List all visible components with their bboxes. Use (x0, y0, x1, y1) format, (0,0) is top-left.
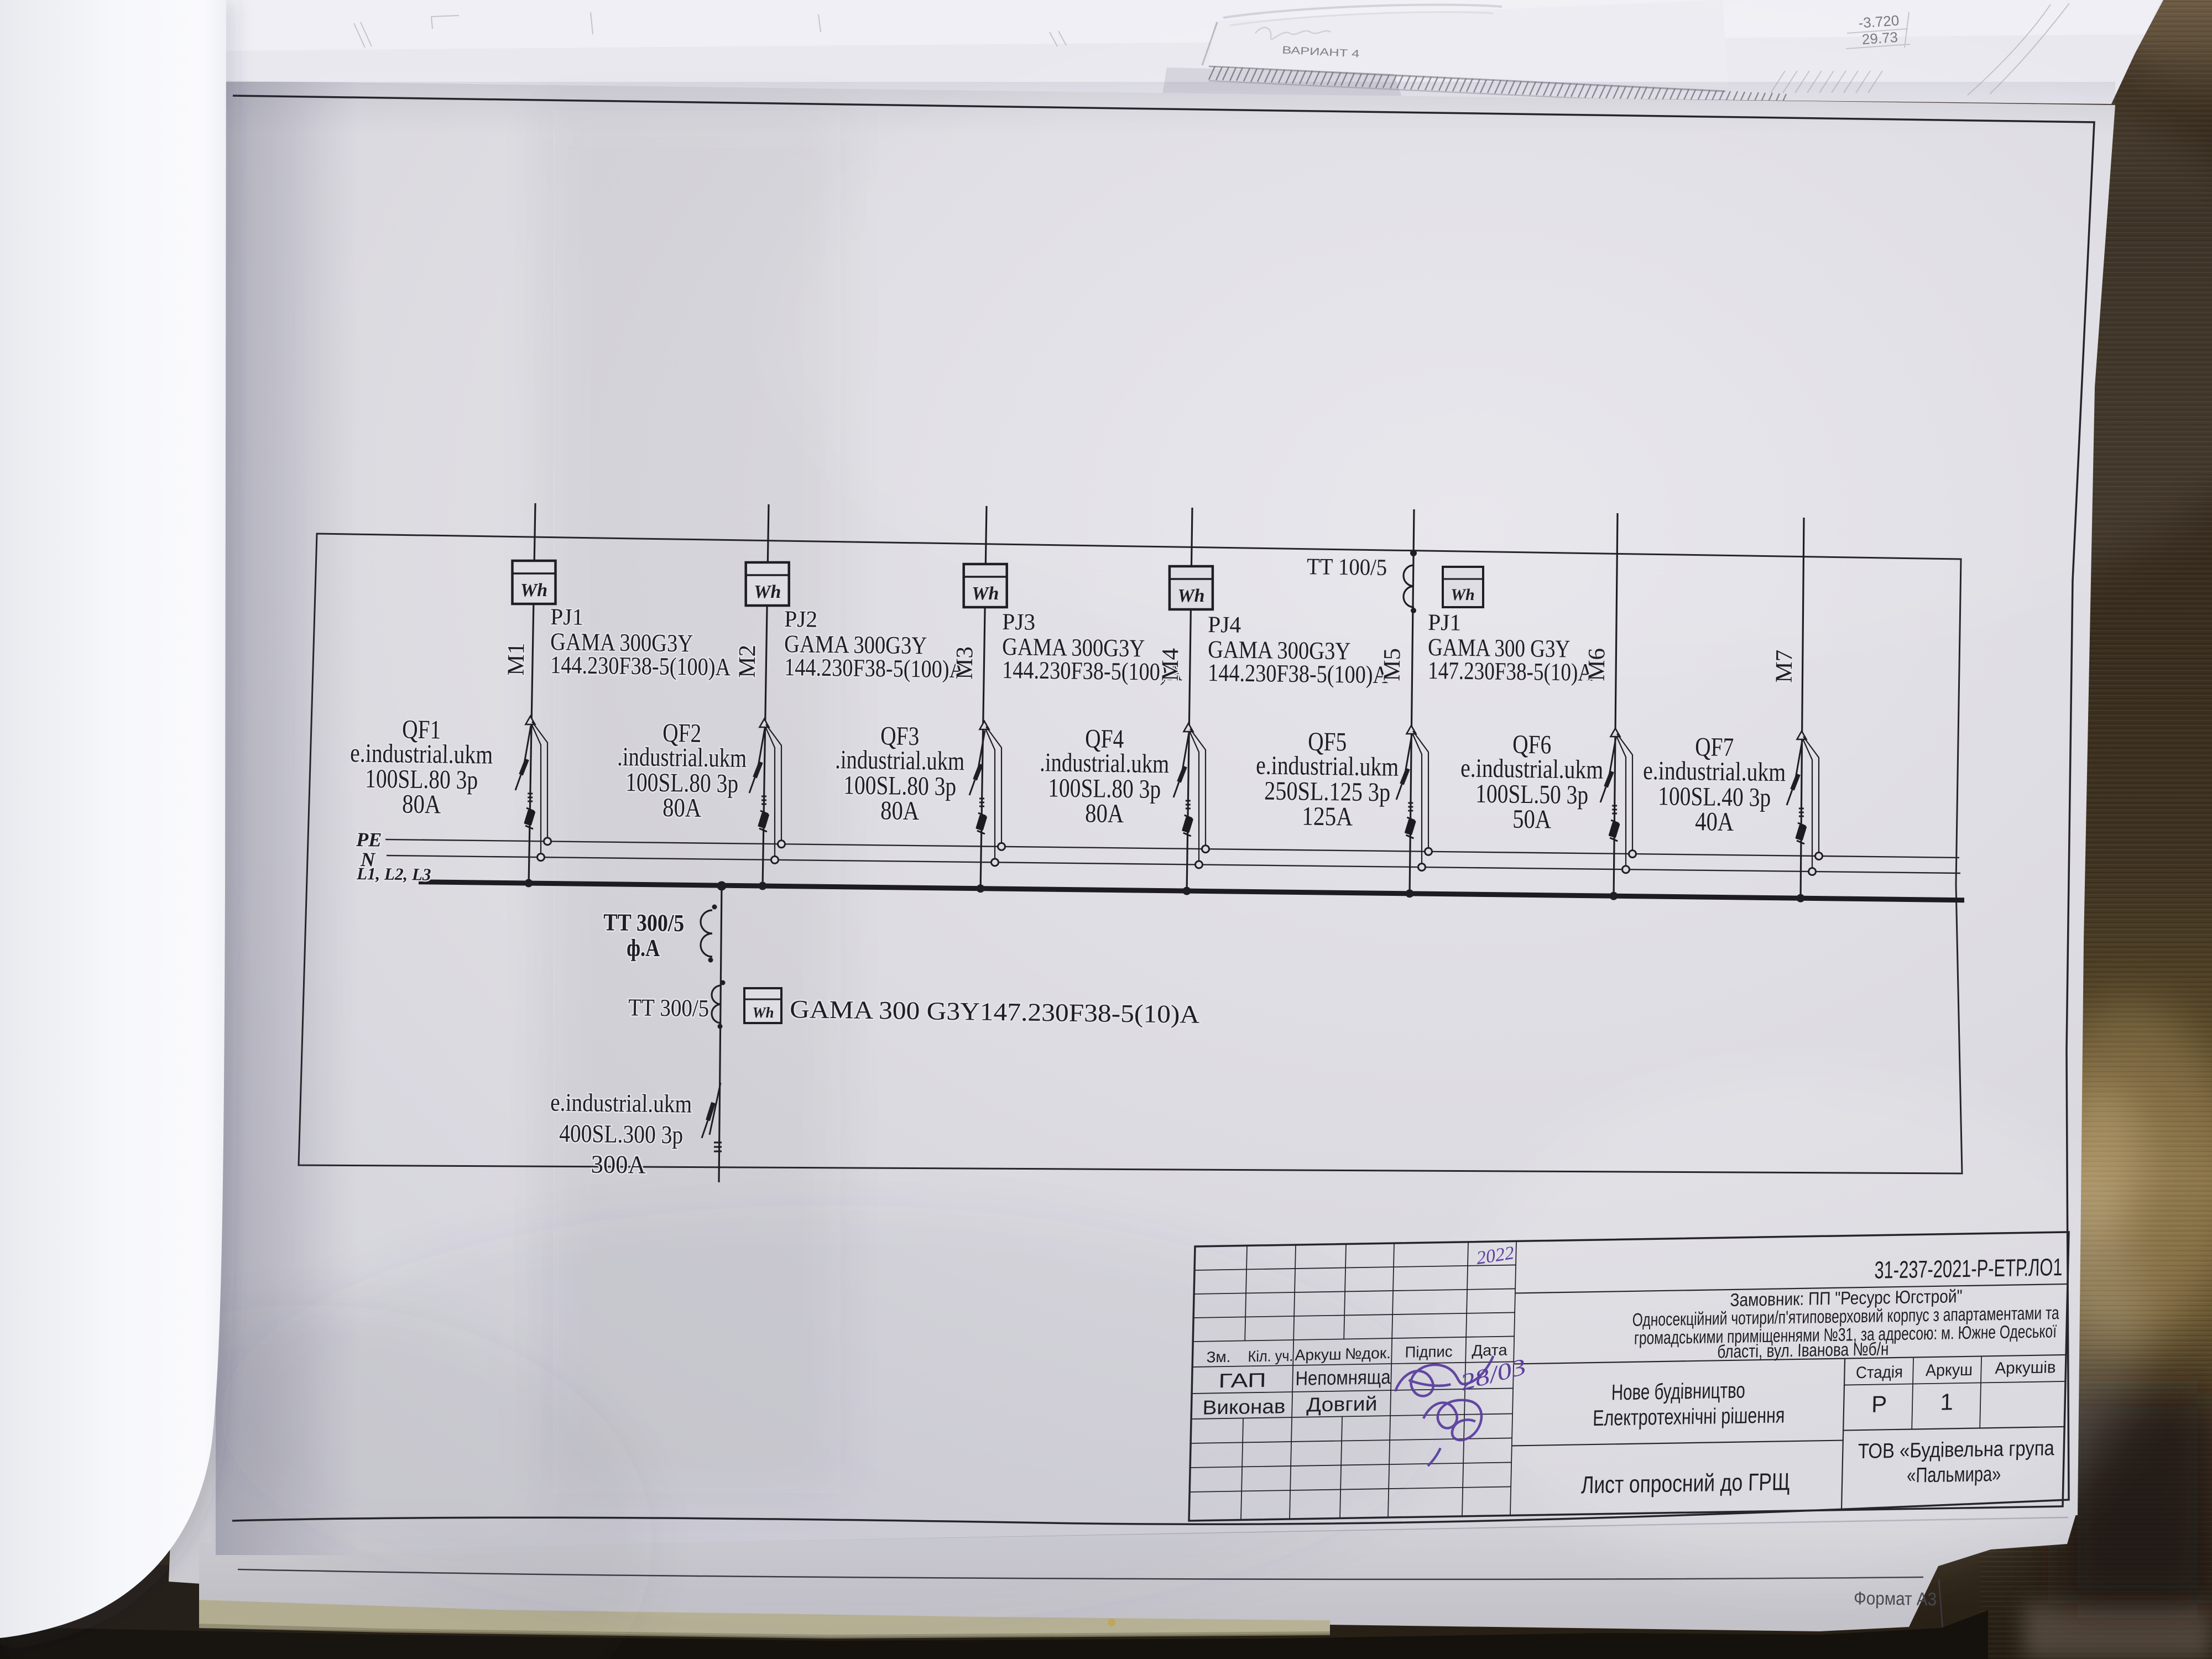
svg-text:Стадія: Стадія (1856, 1363, 1903, 1382)
svg-text:Wh: Wh (1177, 586, 1204, 606)
svg-text:Лист опросний до ГРЩ: Лист опросний до ГРЩ (1581, 1468, 1791, 1499)
svg-text:GAMA 300 G3Y147.230F38-5(10)A: GAMA 300 G3Y147.230F38-5(10)A (790, 995, 1200, 1029)
svg-text:Електротехнічні рішення: Електротехнічні рішення (1593, 1403, 1785, 1431)
svg-text:144.230F38-5(100)A: 144.230F38-5(100)A (550, 651, 731, 681)
svg-text:L1, L2, L3: L1, L2, L3 (356, 864, 431, 884)
svg-text:PJ4: PJ4 (1208, 612, 1241, 638)
svg-text:ТТ 300/5: ТТ 300/5 (628, 994, 709, 1022)
svg-text:Р: Р (1871, 1391, 1887, 1417)
svg-text:144.230F38-5(100)A: 144.230F38-5(100)A (1002, 656, 1183, 686)
svg-text:80A: 80A (402, 790, 441, 820)
svg-text:М2: М2 (734, 645, 761, 678)
svg-text:«Пальмира»: «Пальмира» (1907, 1463, 2001, 1488)
svg-text:ф.А: ф.А (627, 934, 660, 962)
svg-text:1: 1 (1940, 1389, 1953, 1415)
svg-text:№док.: №док. (1345, 1344, 1391, 1362)
svg-text:144.230F38-5(100)A: 144.230F38-5(100)A (1208, 659, 1389, 688)
svg-text:PE: PE (356, 828, 382, 851)
svg-text:Непомняща: Непомняща (1295, 1365, 1391, 1390)
svg-text:Кіл. уч.: Кіл. уч. (1248, 1347, 1293, 1365)
svg-text:300A: 300A (591, 1150, 646, 1178)
svg-text:Зм.: Зм. (1206, 1348, 1231, 1366)
svg-text:Аркуш: Аркуш (1926, 1361, 1973, 1380)
svg-text:80A: 80A (880, 796, 920, 826)
svg-text:Аркушів: Аркушів (1995, 1358, 2056, 1378)
svg-text:Wh: Wh (972, 583, 999, 604)
svg-text:Нове будівництво: Нове будівництво (1611, 1379, 1745, 1405)
svg-text:Wh: Wh (754, 582, 781, 602)
svg-text:Довгий: Довгий (1306, 1392, 1378, 1416)
svg-text:PJ2: PJ2 (784, 607, 818, 633)
svg-text:80A: 80A (662, 793, 702, 823)
svg-text:Wh: Wh (1451, 586, 1474, 604)
svg-text:144.230F38-5(100)A: 144.230F38-5(100)A (784, 653, 965, 683)
svg-text:М7: М7 (1771, 650, 1798, 683)
svg-text:М4: М4 (1157, 648, 1184, 681)
svg-text:PJ1: PJ1 (550, 604, 584, 630)
svg-text:80A: 80A (1085, 799, 1124, 828)
svg-text:бласті, вул. Іванова №б/н: бласті, вул. Іванова №б/н (1717, 1338, 1889, 1361)
svg-text:М1: М1 (503, 643, 530, 676)
svg-text:М3: М3 (952, 646, 978, 680)
svg-text:ГАП: ГАП (1218, 1369, 1266, 1392)
svg-text:147.230F38-5(10)A: 147.230F38-5(10)A (1428, 656, 1593, 686)
svg-text:Формат А3: Формат А3 (1854, 1588, 1937, 1609)
svg-text:ТТ 300/5: ТТ 300/5 (603, 909, 685, 937)
svg-text:125A: 125A (1302, 802, 1353, 832)
svg-text:31-237-2021-Р-ЕТР.ЛО1: 31-237-2021-Р-ЕТР.ЛО1 (1874, 1254, 2063, 1284)
svg-text:40A: 40A (1695, 807, 1734, 837)
svg-text:М6: М6 (1584, 648, 1610, 681)
svg-text:50A: 50A (1512, 805, 1552, 834)
svg-text:Wh: Wh (752, 1004, 774, 1021)
svg-text:Wh: Wh (520, 580, 547, 601)
svg-text:Аркуш: Аркуш (1295, 1346, 1342, 1364)
svg-text:e.industrial.ukm: e.industrial.ukm (550, 1088, 692, 1118)
svg-text:PJ3: PJ3 (1002, 609, 1036, 635)
svg-text:Дата: Дата (1472, 1342, 1507, 1359)
svg-text:400SL.300 3p: 400SL.300 3p (559, 1119, 684, 1149)
svg-text:PJ1: PJ1 (1428, 610, 1462, 636)
svg-text:М5: М5 (1379, 648, 1406, 681)
svg-text:Підпис: Підпис (1405, 1343, 1453, 1360)
svg-text:ТОВ «Будівельна група: ТОВ «Будівельна група (1858, 1437, 2055, 1463)
svg-text:Виконав: Виконав (1202, 1395, 1286, 1418)
svg-text:ТТ 100/5: ТТ 100/5 (1307, 554, 1387, 581)
